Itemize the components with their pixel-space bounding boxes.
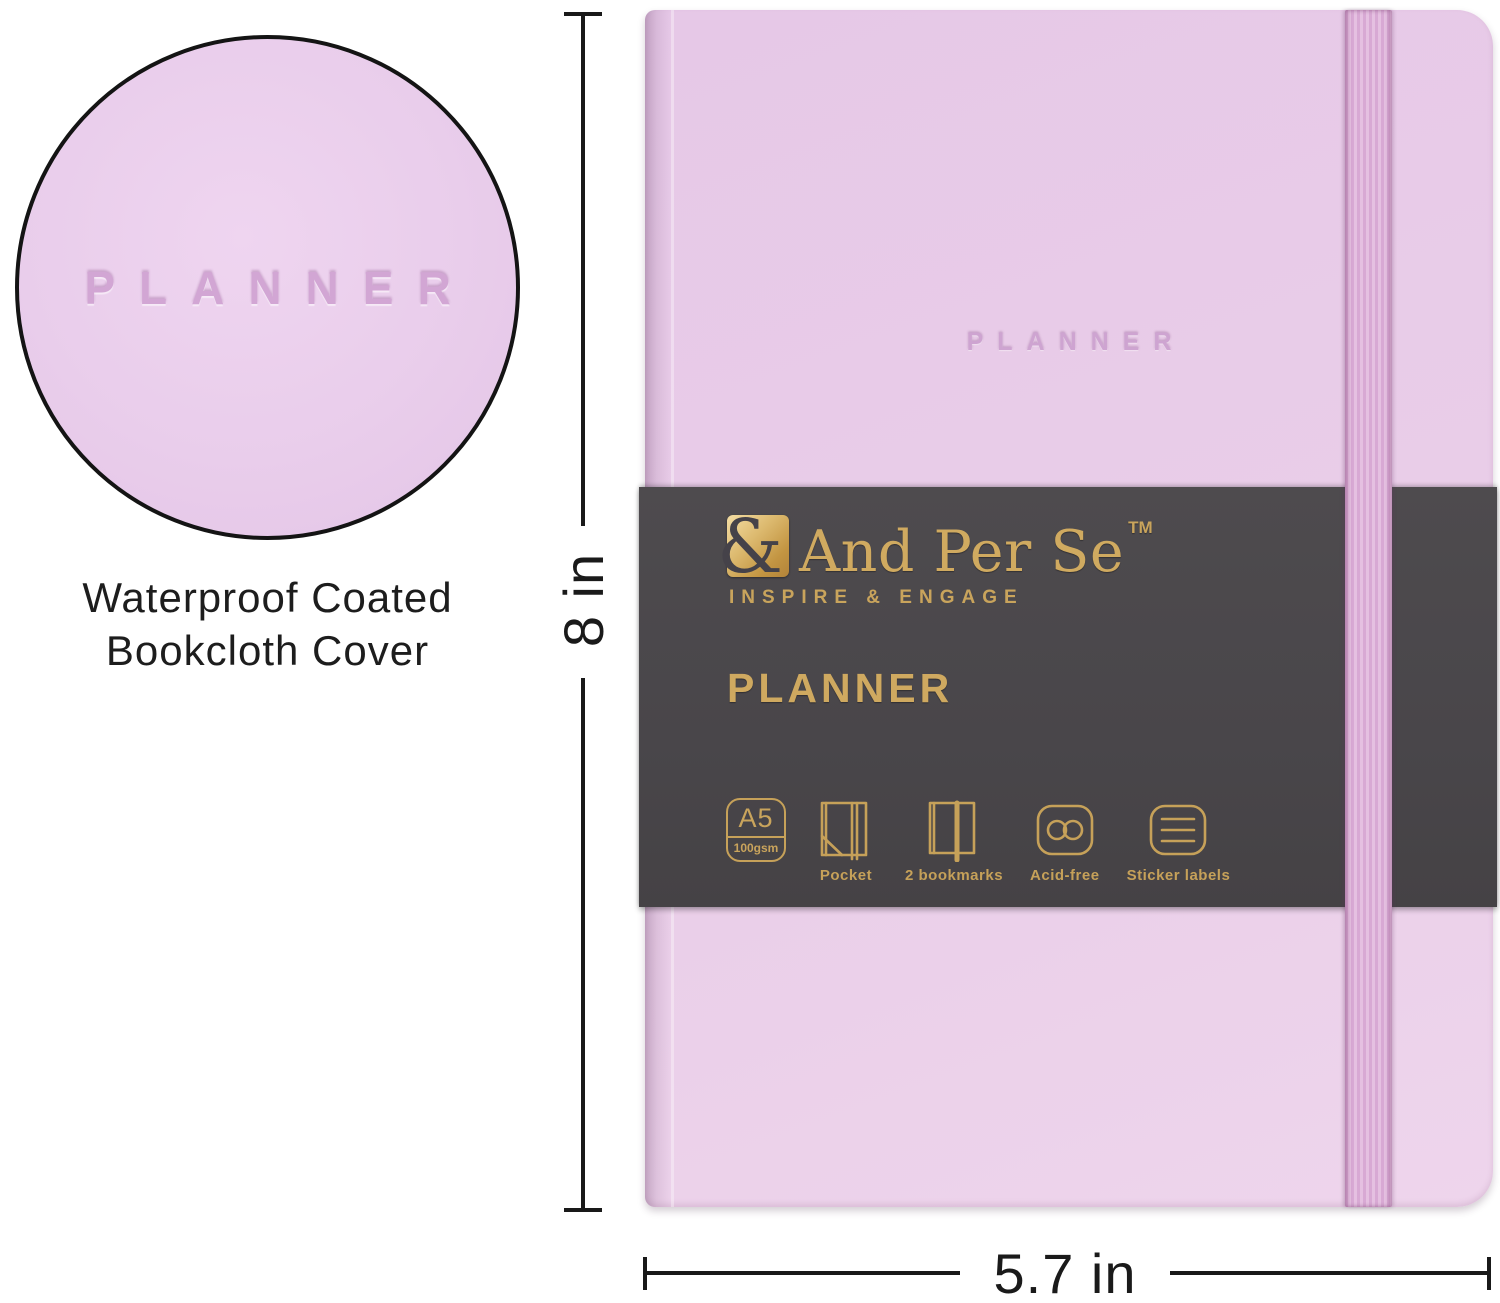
dimension-line-right	[1170, 1271, 1489, 1275]
elastic-band	[1345, 10, 1392, 1207]
brand-logo: & And Per SeTM	[727, 515, 1149, 583]
feature-pocket: Pocket	[814, 797, 878, 885]
dimension-cap-bottom	[564, 1208, 602, 1212]
caption-line-2: Bookcloth Cover	[0, 625, 535, 678]
feature-bookmarks: 2 bookmarks	[905, 797, 1003, 885]
caption-line-1: Waterproof Coated	[0, 572, 535, 625]
bookmarks-icon	[922, 797, 986, 863]
dimension-cap-right	[1487, 1257, 1491, 1290]
inset-caption: Waterproof Coated Bookcloth Cover	[0, 572, 535, 677]
ampersand-icon: &	[717, 518, 783, 576]
feature-label: 2 bookmarks	[905, 867, 1003, 885]
feature-acid-free: Acid-free	[1030, 797, 1100, 885]
dimension-line-left	[645, 1271, 960, 1275]
dimension-line-lower	[581, 678, 585, 1210]
feature-sticker-labels: Sticker labels	[1127, 797, 1231, 885]
feature-paper-spec: A5 100gsm	[725, 797, 787, 885]
feature-label: Pocket	[820, 867, 872, 885]
ampersand-tile: &	[727, 515, 789, 577]
product-image: PLANNER Waterproof Coated Bookcloth Cove…	[0, 0, 1500, 1303]
pocket-icon	[814, 797, 878, 863]
brand-tagline: INSPIRE & ENGAGE	[729, 587, 1024, 609]
acid-free-icon	[1033, 797, 1097, 863]
a5-badge: A5 100gsm	[726, 797, 786, 863]
trademark-symbol: TM	[1128, 518, 1153, 537]
brand-name: And Per SeTM	[799, 515, 1149, 583]
feature-label: Sticker labels	[1127, 867, 1231, 885]
inset-embossed-text: PLANNER	[60, 261, 474, 315]
paper-weight-label: 100gsm	[728, 836, 784, 860]
band-title: PLANNER	[727, 665, 953, 712]
sticker-labels-icon	[1146, 797, 1210, 863]
width-dimension-label: 5.7 in	[962, 1242, 1168, 1303]
feature-label: Acid-free	[1030, 867, 1100, 885]
features-row: A5 100gsm Pocket	[725, 797, 1230, 885]
brand-name-text: And Per Se	[799, 519, 1124, 585]
dimension-line-upper	[581, 12, 585, 526]
paper-size-label: A5	[728, 800, 784, 836]
material-detail-inset: PLANNER	[15, 35, 520, 540]
